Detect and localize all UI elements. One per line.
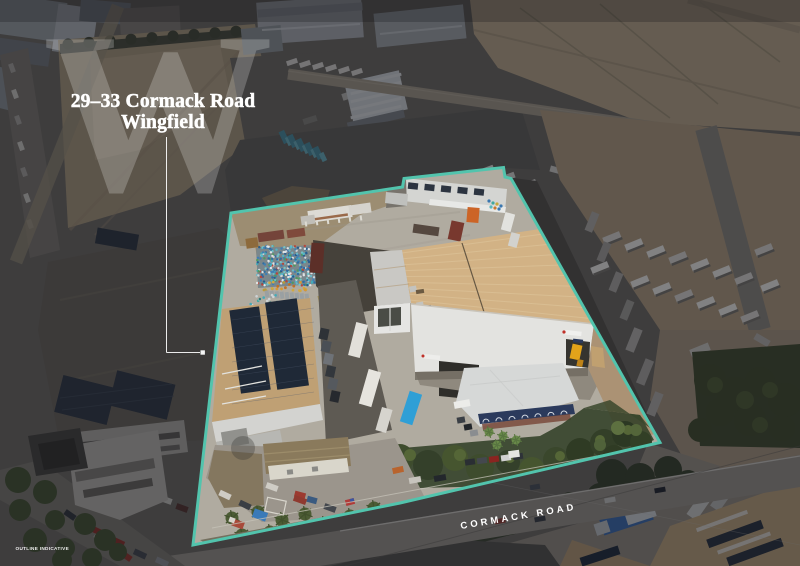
svg-text:OUTLINE INDICATIVE: OUTLINE INDICATIVE bbox=[16, 546, 70, 551]
svg-text:Wingfield: Wingfield bbox=[121, 112, 205, 133]
svg-text:29–33 Cormack Road: 29–33 Cormack Road bbox=[71, 91, 256, 112]
